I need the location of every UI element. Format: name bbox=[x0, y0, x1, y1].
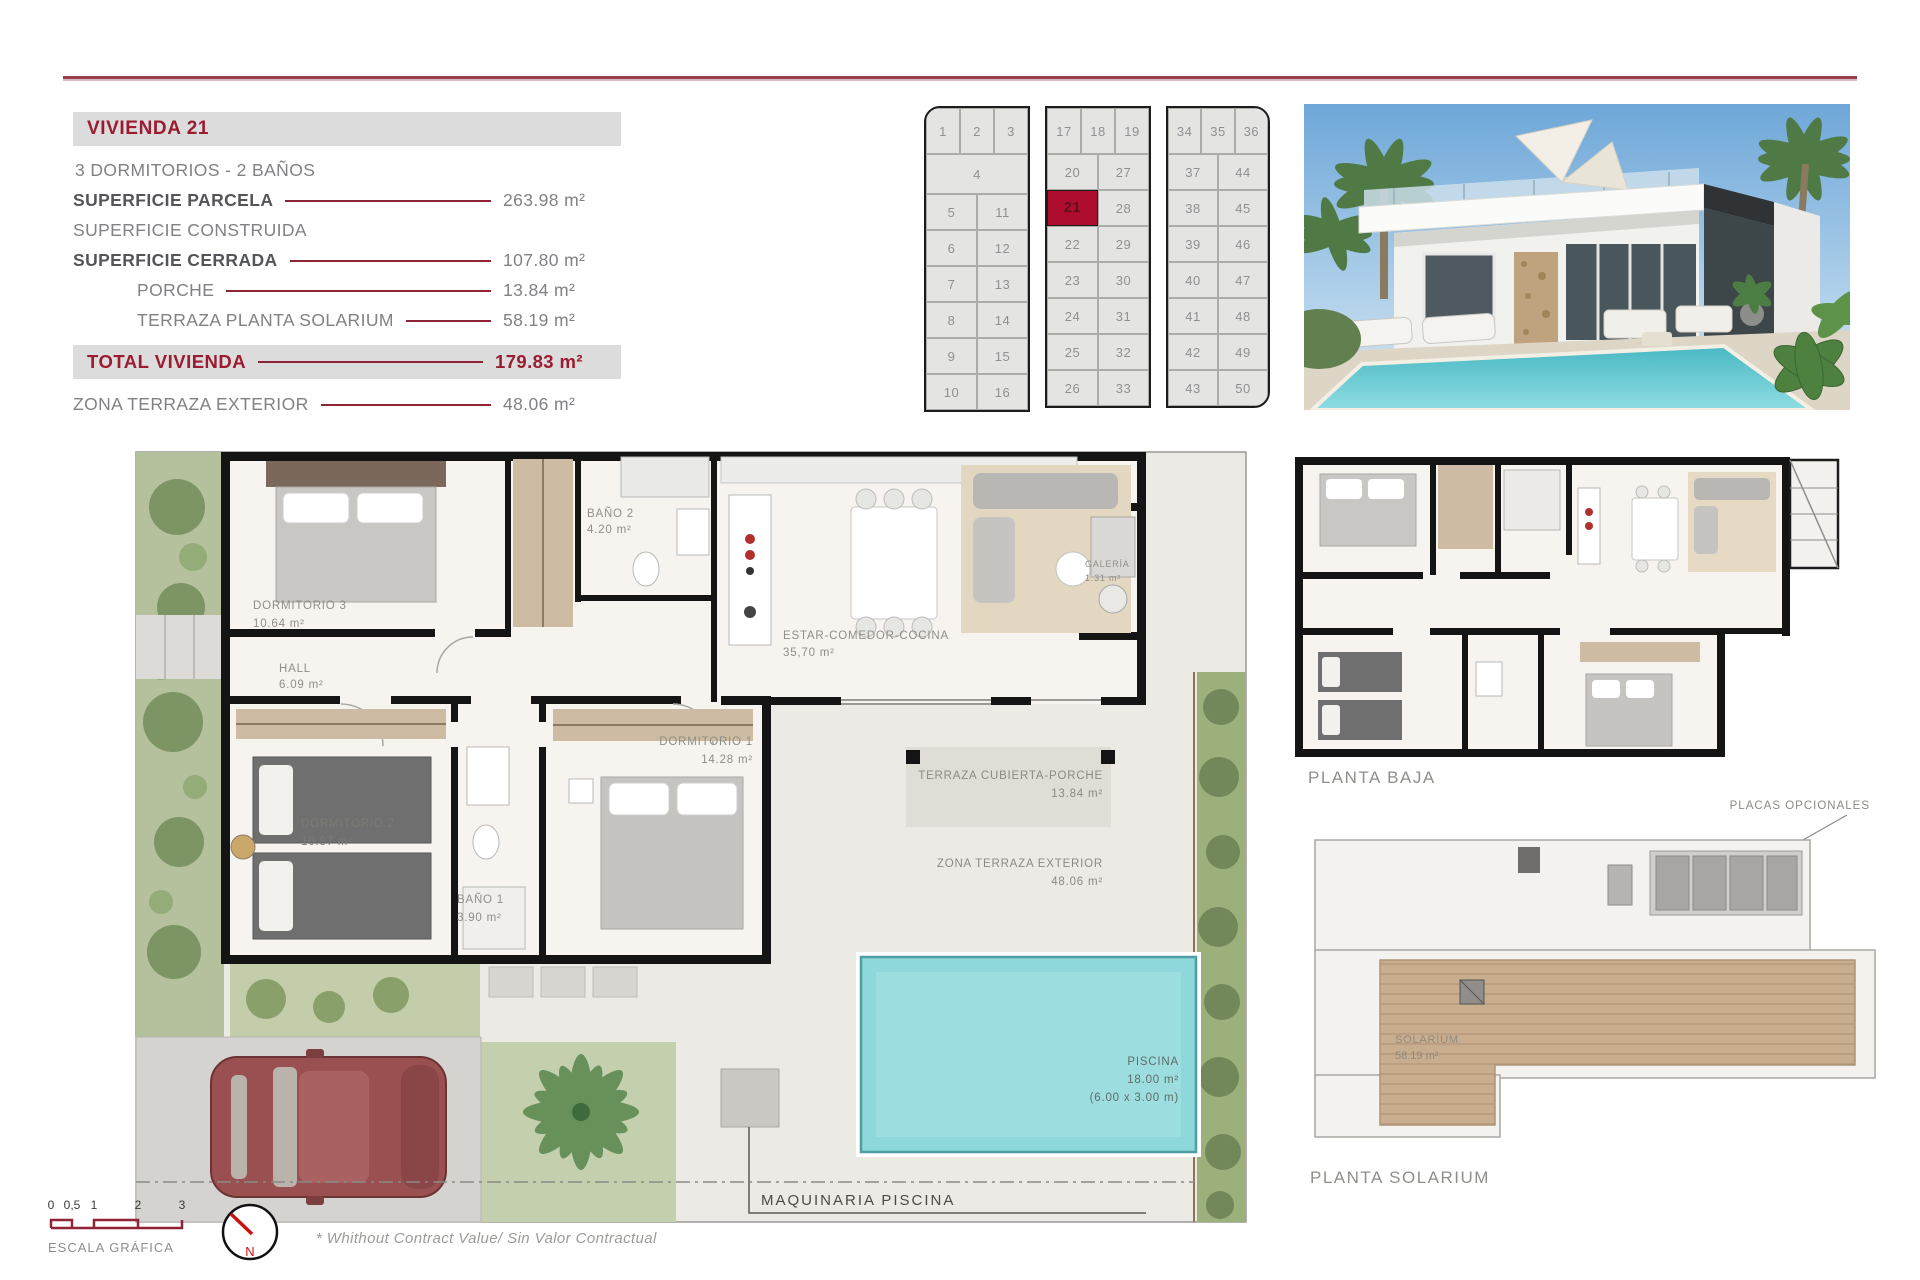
spec-row-porche: PORCHE 13.84 m² bbox=[73, 280, 621, 301]
room-label: DORMITORIO 2 bbox=[301, 818, 395, 830]
spec-label: TERRAZA PLANTA SOLARIUM bbox=[137, 310, 394, 331]
site-map-cell-12: 12 bbox=[977, 230, 1028, 266]
planta-baja-plan bbox=[1280, 452, 1842, 764]
site-map-cell-32: 32 bbox=[1098, 334, 1149, 370]
room-label: BAÑO 1 bbox=[457, 893, 504, 906]
spec-value: 263.98 m² bbox=[503, 190, 621, 211]
site-map-cell-43: 43 bbox=[1168, 370, 1218, 406]
placas-label: PLACAS OPCIONALES bbox=[1730, 800, 1870, 812]
solarium-room-label: SOLARIUM bbox=[1395, 1034, 1459, 1046]
title-band: VIVIENDA 21 bbox=[73, 112, 621, 146]
scale-label: ESCALA GRÁFICA bbox=[48, 1240, 174, 1255]
bedrooms-baths-subtitle: 3 DORMITORIOS - 2 BAÑOS bbox=[75, 160, 621, 181]
site-map-cell-11: 11 bbox=[977, 194, 1028, 230]
site-map-cell-9: 9 bbox=[926, 338, 977, 374]
site-map-cell-10: 10 bbox=[926, 374, 977, 410]
spec-row-zona-terraza: ZONA TERRAZA EXTERIOR 48.06 m² bbox=[73, 394, 621, 415]
leader-line bbox=[406, 320, 491, 322]
site-map-cell-7: 7 bbox=[926, 266, 977, 302]
leader-line bbox=[258, 361, 483, 364]
palm-top-view bbox=[523, 1054, 639, 1170]
hedge-right bbox=[1194, 672, 1246, 1222]
spec-label: SUPERFICIE CONSTRUIDA bbox=[73, 220, 307, 241]
room-area: 10.87 m² bbox=[301, 836, 353, 848]
leader-line bbox=[290, 260, 491, 262]
site-map-cell-26: 26 bbox=[1047, 370, 1098, 406]
room-label: TERRAZA CUBIERTA-PORCHE bbox=[918, 770, 1103, 782]
site-map-block-0: 12345116127138149151016 bbox=[924, 106, 1030, 412]
spec-label: SUPERFICIE PARCELA bbox=[73, 190, 273, 211]
leader-line bbox=[285, 200, 491, 202]
site-map-cell-27: 27 bbox=[1098, 154, 1149, 190]
scale-tick: 3 bbox=[179, 1198, 186, 1212]
site-map-cell-25: 25 bbox=[1047, 334, 1098, 370]
spec-value: 13.84 m² bbox=[503, 280, 621, 301]
room-label: ESTAR-COMEDOR-COCINA bbox=[783, 630, 949, 642]
site-map-cell-36: 36 bbox=[1235, 108, 1268, 154]
scale-tick: 0,5 bbox=[64, 1198, 81, 1212]
site-map-cell-3: 3 bbox=[994, 108, 1028, 154]
site-map-cell-31: 31 bbox=[1098, 298, 1149, 334]
site-map-cell-46: 46 bbox=[1218, 226, 1268, 262]
site-map-cell-44: 44 bbox=[1218, 154, 1268, 190]
site-map-cell-16: 16 bbox=[977, 374, 1028, 410]
site-map-cell-37: 37 bbox=[1168, 154, 1218, 190]
leader-line bbox=[321, 404, 491, 406]
site-map-cell-2: 2 bbox=[960, 108, 994, 154]
room-area: 18.00 m² bbox=[1127, 1074, 1179, 1086]
room-label: DORMITORIO 1 bbox=[659, 736, 753, 748]
room-area: 48.06 m² bbox=[1051, 876, 1103, 888]
scale-bar: 0 0,5 1 2 3 bbox=[48, 1198, 208, 1238]
north-letter: N bbox=[245, 1244, 254, 1259]
site-map-key: 1234511612713814915101617181920272128222… bbox=[924, 106, 1270, 410]
site-map-cell-47: 47 bbox=[1218, 262, 1268, 298]
site-map-cell-35: 35 bbox=[1201, 108, 1234, 154]
site-map-cell-14: 14 bbox=[977, 302, 1028, 338]
room-area: 6.09 m² bbox=[279, 679, 324, 691]
room-area: 4.20 m² bbox=[587, 524, 632, 536]
site-map-cell-19: 19 bbox=[1115, 108, 1149, 154]
spec-row-construida: SUPERFICIE CONSTRUIDA bbox=[73, 220, 621, 241]
site-map-block-1: 1718192027212822292330243125322633 bbox=[1045, 106, 1151, 408]
pool bbox=[856, 952, 1201, 1157]
villa-photo bbox=[1304, 104, 1850, 410]
planta-solarium-label: PLANTA SOLARIUM bbox=[1310, 1168, 1490, 1188]
scale-ticks: 0 0,5 1 2 3 bbox=[48, 1198, 186, 1212]
driveway bbox=[136, 1037, 481, 1222]
site-map-cell-4: 4 bbox=[926, 154, 1028, 194]
spec-label: PORCHE bbox=[137, 280, 214, 301]
scale-tick: 0 bbox=[48, 1198, 55, 1212]
site-map-cell-49: 49 bbox=[1218, 334, 1268, 370]
site-map-cell-1: 1 bbox=[926, 108, 960, 154]
north-arrow: N bbox=[218, 1196, 282, 1268]
site-map-cell-45: 45 bbox=[1218, 190, 1268, 226]
site-map-cell-18: 18 bbox=[1081, 108, 1115, 154]
room-area: 35,70 m² bbox=[783, 647, 835, 659]
total-row: TOTAL VIVIENDA 179.83 m² bbox=[73, 345, 621, 379]
site-map-cell-8: 8 bbox=[926, 302, 977, 338]
site-map-cell-22: 22 bbox=[1047, 226, 1098, 262]
machinery-label: MAQUINARIA PISCINA bbox=[761, 1192, 955, 1209]
site-map-cell-40: 40 bbox=[1168, 262, 1218, 298]
page-title: VIVIENDA 21 bbox=[87, 118, 209, 140]
spec-label: SUPERFICIE CERRADA bbox=[73, 250, 278, 271]
planta-baja-label: PLANTA BAJA bbox=[1308, 768, 1436, 788]
scale-tick: 1 bbox=[91, 1198, 98, 1212]
spec-value: 58.19 m² bbox=[503, 310, 621, 331]
room-label: ZONA TERRAZA EXTERIOR bbox=[937, 858, 1103, 870]
site-map-cell-6: 6 bbox=[926, 230, 977, 266]
spec-row-terraza-solarium: TERRAZA PLANTA SOLARIUM 58.19 m² bbox=[73, 310, 621, 331]
site-map-notch bbox=[924, 156, 926, 178]
site-map-cell-20: 20 bbox=[1047, 154, 1098, 190]
total-label: TOTAL VIVIENDA bbox=[87, 351, 246, 373]
site-map-cell-34: 34 bbox=[1168, 108, 1201, 154]
garden-left bbox=[136, 452, 224, 1037]
top-divider bbox=[63, 76, 1857, 82]
spec-row-cerrada: SUPERFICIE CERRADA 107.80 m² bbox=[73, 250, 621, 271]
site-map-cell-17: 17 bbox=[1047, 108, 1081, 154]
room-area: 3.90 m² bbox=[457, 912, 502, 924]
site-map-cell-23: 23 bbox=[1047, 262, 1098, 298]
site-map-cell-33: 33 bbox=[1098, 370, 1149, 406]
site-map-cell-13: 13 bbox=[977, 266, 1028, 302]
room-label: DORMITORIO 3 bbox=[253, 600, 347, 612]
total-value: 179.83 m² bbox=[495, 351, 607, 373]
site-map-cell-38: 38 bbox=[1168, 190, 1218, 226]
porch bbox=[906, 747, 1111, 827]
site-map-cell-24: 24 bbox=[1047, 298, 1098, 334]
spec-value: 107.80 m² bbox=[503, 250, 621, 271]
site-map-block-2: 3435363744384539464047414842494350 bbox=[1166, 106, 1270, 408]
room-area: 14.28 m² bbox=[701, 754, 753, 766]
room-label: BAÑO 2 bbox=[587, 507, 634, 520]
site-map-cell-29: 29 bbox=[1098, 226, 1149, 262]
spec-value: 48.06 m² bbox=[503, 394, 621, 415]
site-map-cell-48: 48 bbox=[1218, 298, 1268, 334]
brochure-page: VIVIENDA 21 3 DORMITORIOS - 2 BAÑOS SUPE… bbox=[0, 0, 1920, 1280]
site-map-cell-15: 15 bbox=[977, 338, 1028, 374]
room-area: 13.84 m² bbox=[1051, 788, 1103, 800]
site-map-cell-21: 21 bbox=[1047, 190, 1098, 226]
room-area: 1.31 m² bbox=[1085, 573, 1121, 583]
planta-solarium-plan: PLACAS OPCIONALES bbox=[1310, 795, 1880, 1165]
room-label: PISCINA bbox=[1127, 1056, 1179, 1068]
room-label: HALL bbox=[279, 663, 311, 675]
disclaimer: * Whithout Contract Value/ Sin Valor Con… bbox=[316, 1230, 657, 1247]
site-map-cell-28: 28 bbox=[1098, 190, 1149, 226]
leader-line bbox=[226, 290, 491, 292]
spec-row-parcela: SUPERFICIE PARCELA 263.98 m² bbox=[73, 190, 621, 211]
scale-tick: 2 bbox=[135, 1198, 142, 1212]
site-map-cell-39: 39 bbox=[1168, 226, 1218, 262]
site-map-cell-41: 41 bbox=[1168, 298, 1218, 334]
solarium-room-area: 58.19 m² bbox=[1395, 1050, 1439, 1062]
site-map-cell-42: 42 bbox=[1168, 334, 1218, 370]
room-label: GALERÍA bbox=[1085, 559, 1130, 569]
site-map-cell-5: 5 bbox=[926, 194, 977, 230]
pb-stairs bbox=[1790, 460, 1838, 568]
main-floor-plan: DORMITORIO 3 10.64 m² BAÑO 2 4.20 m² HAL… bbox=[61, 447, 1266, 1237]
spec-label: ZONA TERRAZA EXTERIOR bbox=[73, 394, 309, 415]
scale-bar-line bbox=[51, 1220, 182, 1228]
room-dims: (6.00 x 3.00 m) bbox=[1090, 1092, 1179, 1104]
room-area: 10.64 m² bbox=[253, 618, 305, 630]
site-map-cell-50: 50 bbox=[1218, 370, 1268, 406]
site-map-cell-30: 30 bbox=[1098, 262, 1149, 298]
info-panel: VIVIENDA 21 3 DORMITORIOS - 2 BAÑOS SUPE… bbox=[73, 112, 621, 415]
